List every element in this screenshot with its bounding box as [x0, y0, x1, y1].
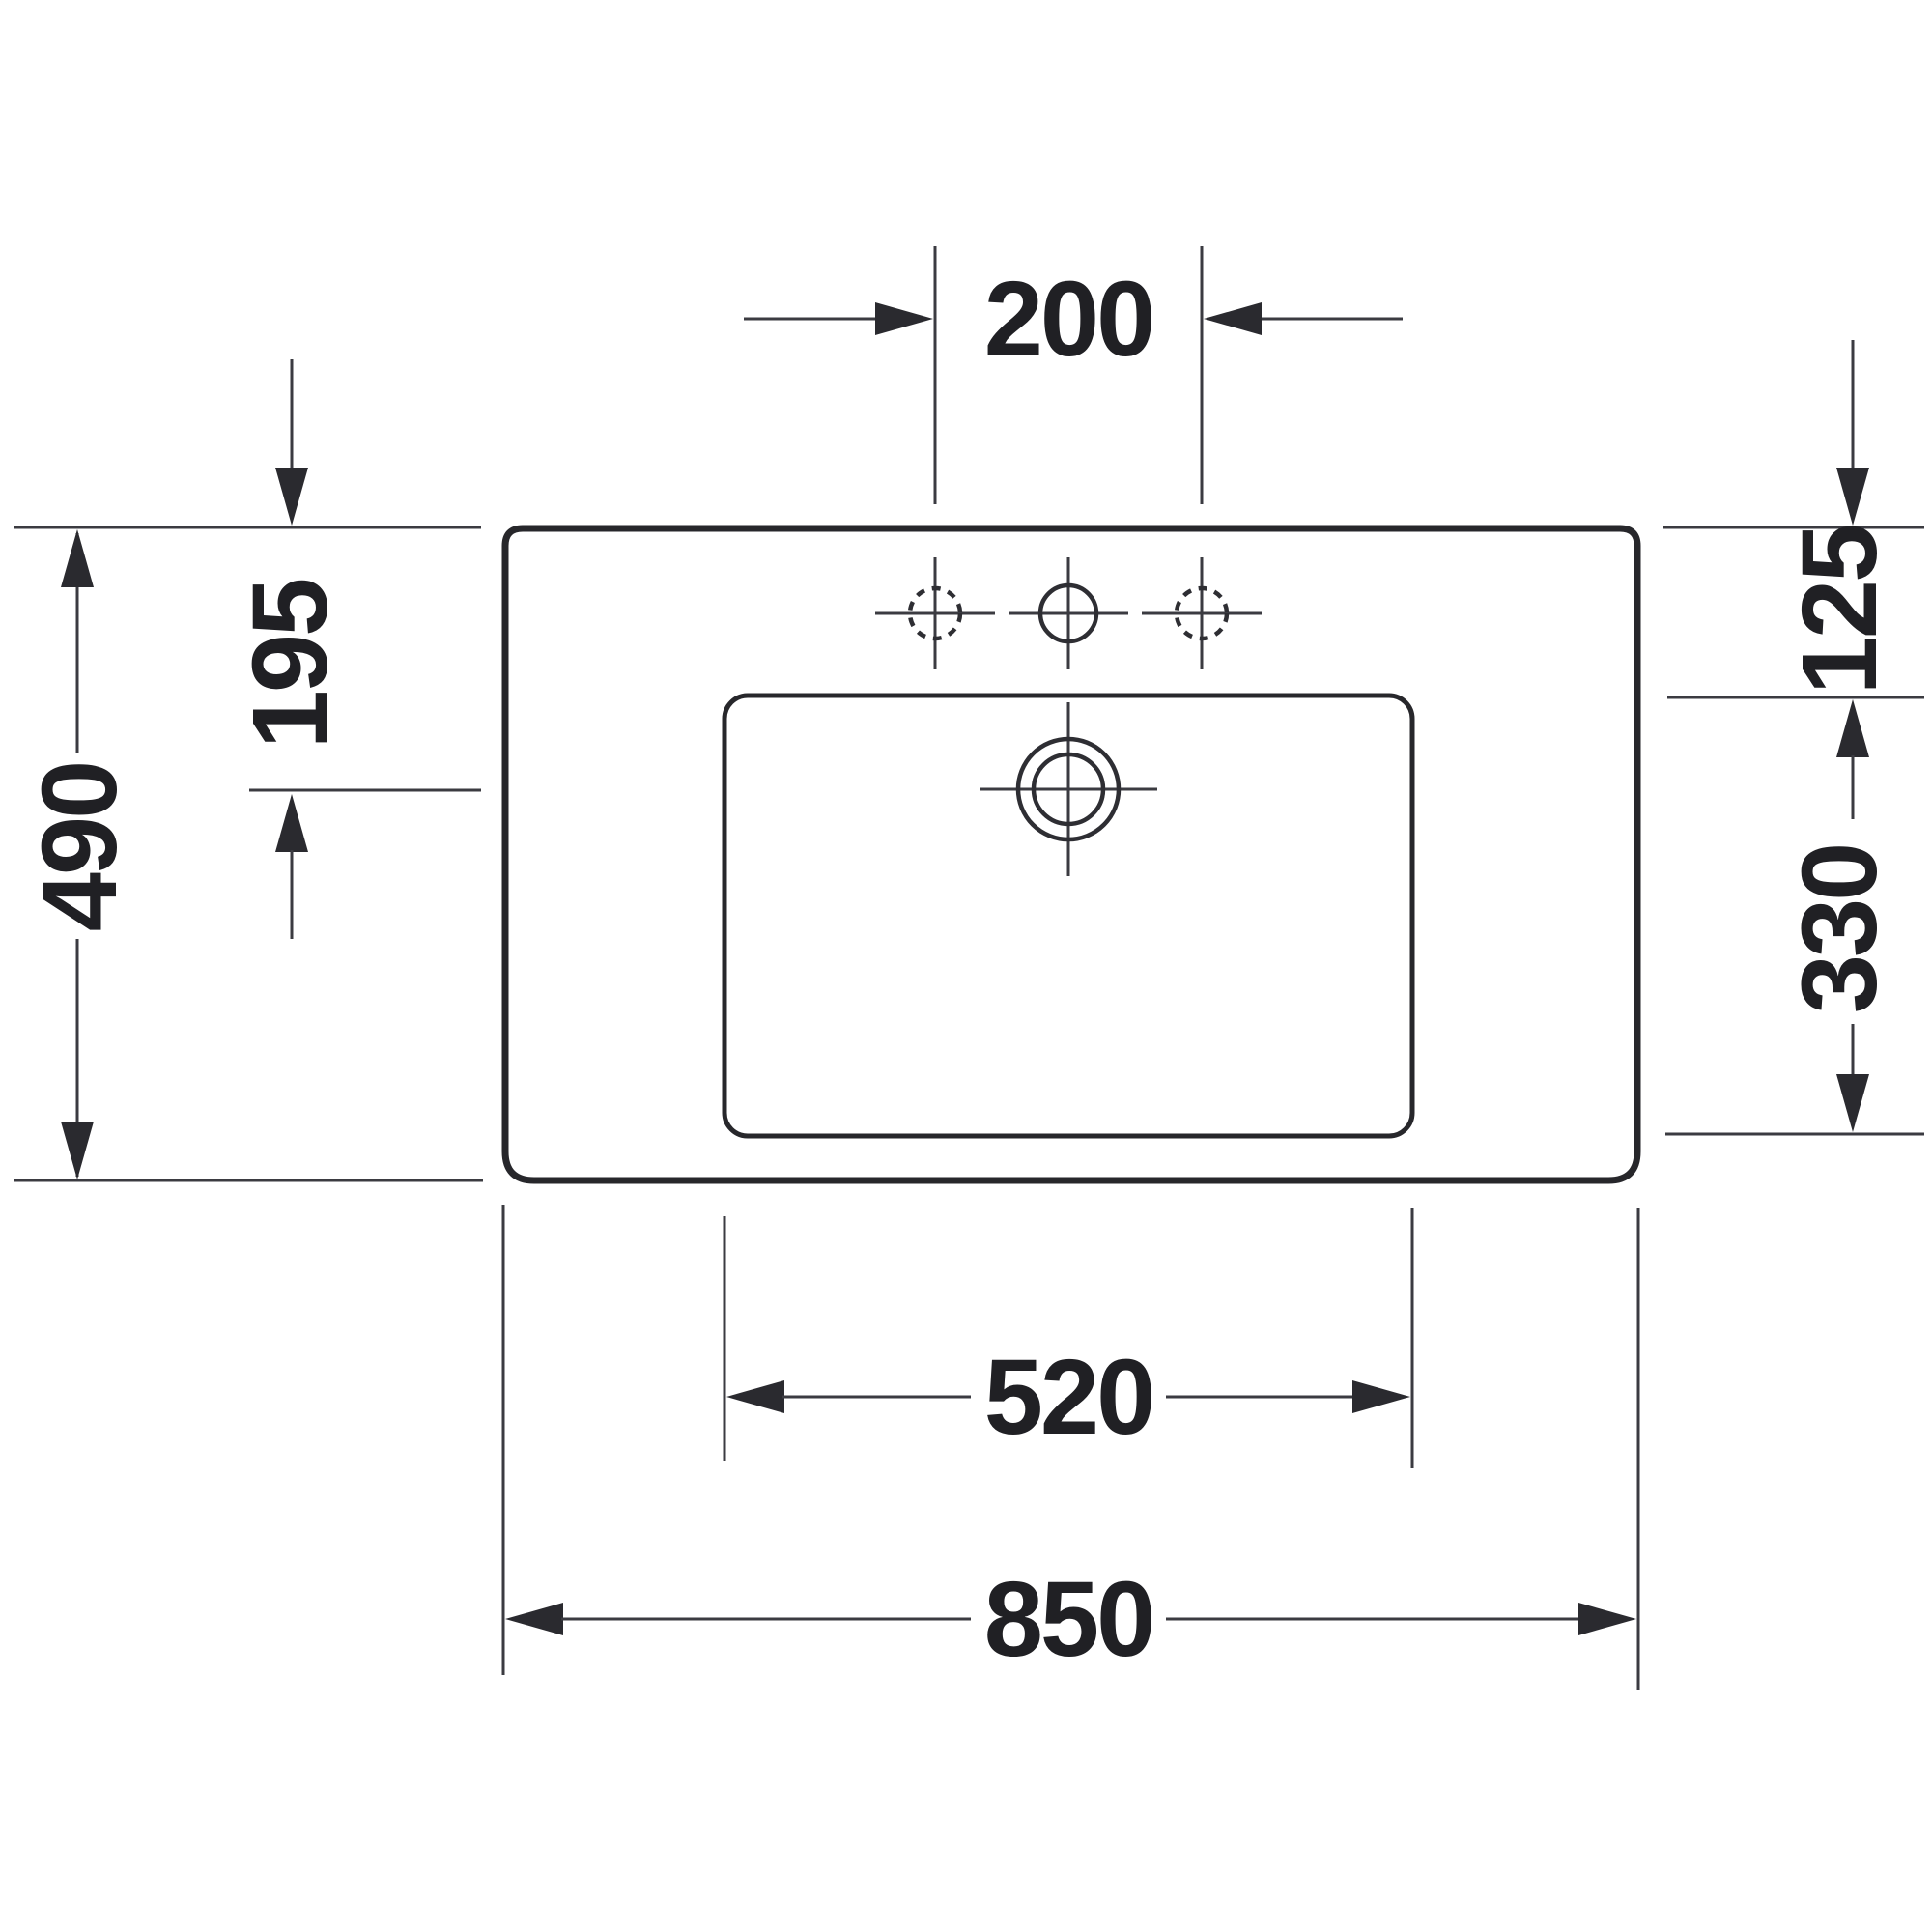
arrowhead-right-icon [1352, 1380, 1410, 1413]
dimension-value-125: 125 [1780, 526, 1899, 695]
dimension-value-195: 195 [231, 580, 350, 749]
technical-drawing-canvas: 200 490 195 125 330 [0, 0, 1932, 1932]
arrowhead-up-icon [61, 529, 94, 587]
dimension-value-200: 200 [984, 260, 1153, 379]
dimension-faucet-hole-spacing: 200 [744, 246, 1403, 504]
arrowhead-left-icon [1204, 302, 1262, 335]
arrowhead-down-icon [1836, 1074, 1869, 1132]
dimension-value-330: 330 [1780, 845, 1899, 1014]
dimension-basin-width: 520 [724, 1207, 1412, 1468]
arrowhead-down-icon [61, 1122, 94, 1179]
arrowhead-up-icon [1836, 699, 1869, 757]
dimension-basin-depth: 330 [1665, 699, 1924, 1134]
dimension-value-850: 850 [984, 1560, 1153, 1679]
arrowhead-right-icon [875, 302, 933, 335]
washbasin-outline-group [505, 528, 1637, 1180]
dimension-back-edge-to-basin: 125 [1663, 340, 1924, 697]
arrowhead-right-icon [1578, 1603, 1636, 1635]
dimension-back-edge-to-drain: 195 [231, 359, 481, 939]
arrowhead-left-icon [726, 1380, 784, 1413]
washbasin-dimension-drawing: 200 490 195 125 330 [0, 0, 1932, 1932]
dimension-value-490: 490 [20, 763, 139, 932]
arrowhead-down-icon [275, 468, 308, 526]
dimension-value-520: 520 [984, 1338, 1153, 1457]
arrowhead-left-icon [505, 1603, 563, 1635]
arrowhead-up-icon [275, 794, 308, 852]
arrowhead-down-icon [1836, 468, 1869, 526]
